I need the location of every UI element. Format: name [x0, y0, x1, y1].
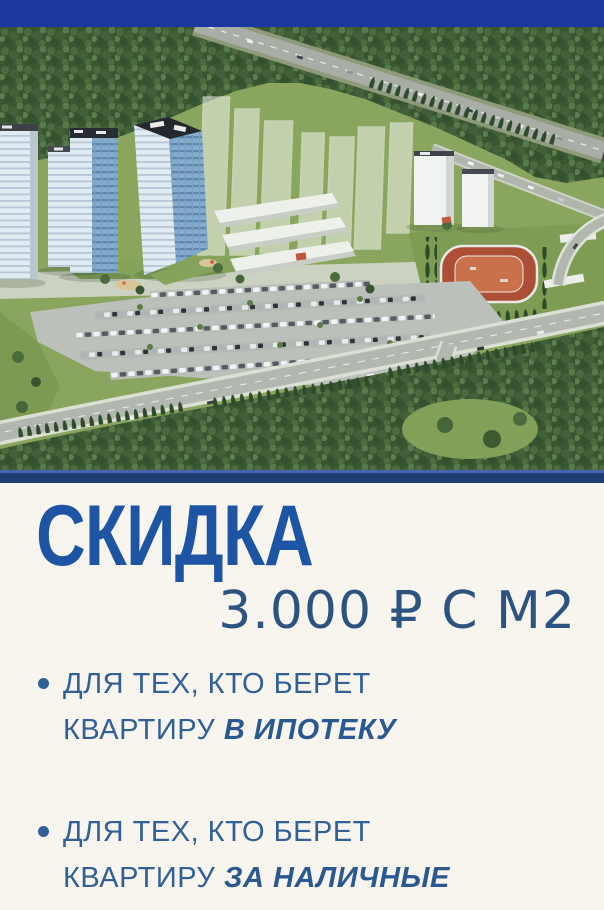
aerial-render-image	[0, 27, 604, 470]
bullet-mortgage: ДЛЯ ТЕХ, КТО БЕРЕТ КВАРТИРУ В ИПОТЕКУ	[36, 661, 576, 753]
bullet-line1: ДЛЯ ТЕХ, КТО БЕРЕТ	[63, 668, 371, 700]
bullet-dot	[38, 678, 49, 689]
bullet-cash-text: ДЛЯ ТЕХ, КТО БЕРЕТ КВАРТИРУ ЗА НАЛИЧНЫЕ	[63, 809, 450, 901]
top-accent-band	[0, 0, 604, 27]
bullet-line1: ДЛЯ ТЕХ, КТО БЕРЕТ	[63, 816, 371, 848]
section-divider	[0, 470, 604, 483]
bullet-emphasis-cash: ЗА НАЛИЧНЫЕ	[224, 862, 450, 894]
price-line: 3.000 ₽ С М2	[36, 585, 576, 637]
headline: СКИДКА	[36, 493, 468, 579]
bullet-dot	[38, 826, 49, 837]
promo-poster: СКИДКА 3.000 ₽ С М2 ДЛЯ ТЕХ, КТО БЕРЕТ К…	[0, 0, 604, 910]
bullet-line2: КВАРТИРУ	[63, 862, 215, 894]
bullet-mortgage-text: ДЛЯ ТЕХ, КТО БЕРЕТ КВАРТИРУ В ИПОТЕКУ	[63, 661, 396, 753]
divider-navy-band	[0, 473, 604, 483]
bullet-line2: КВАРТИРУ	[63, 714, 215, 746]
bullet-emphasis-mortgage: В ИПОТЕКУ	[224, 714, 396, 746]
promo-content: СКИДКА 3.000 ₽ С М2 ДЛЯ ТЕХ, КТО БЕРЕТ К…	[0, 493, 604, 901]
bullet-cash: ДЛЯ ТЕХ, КТО БЕРЕТ КВАРТИРУ ЗА НАЛИЧНЫЕ	[36, 809, 576, 901]
left-towers	[0, 117, 230, 288]
